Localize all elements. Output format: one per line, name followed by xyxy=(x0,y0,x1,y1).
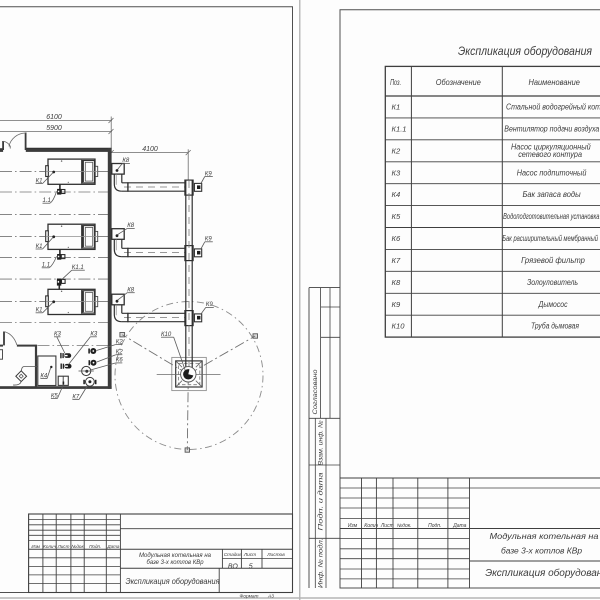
svg-text:А3: А3 xyxy=(267,593,274,599)
svg-text:4100: 4100 xyxy=(142,146,158,153)
svg-text:Труба дымовая: Труба дымовая xyxy=(531,322,580,331)
svg-text:Водоподготовительная установка: Водоподготовительная установка xyxy=(503,212,600,221)
svg-text:Бак расширительный мембранный: Бак расширительный мембранный xyxy=(502,234,598,243)
svg-text:К4: К4 xyxy=(392,190,401,199)
svg-text:К1: К1 xyxy=(392,103,401,112)
svg-text:Изм: Изм xyxy=(348,523,358,529)
svg-text:Взам. инф. №: Взам. инф. № xyxy=(317,420,324,465)
svg-text:Дымосос: Дымосос xyxy=(538,300,568,309)
svg-text:базе 3-х котлов КВр: базе 3-х котлов КВр xyxy=(501,545,582,555)
svg-text:Модульная котельная на: Модульная котельная на xyxy=(490,531,599,541)
svg-text:Золоуловитель: Золоуловитель xyxy=(527,278,578,287)
svg-text:Модульная котельная на: Модульная котельная на xyxy=(139,552,212,559)
svg-text:Поз.: Поз. xyxy=(390,78,401,87)
svg-text:К8: К8 xyxy=(392,278,401,287)
svg-text:Лист: Лист xyxy=(380,523,394,529)
svg-text:Лист: Лист xyxy=(243,552,256,558)
svg-text:Изм: Изм xyxy=(31,544,40,549)
svg-text:К7: К7 xyxy=(392,256,401,265)
svg-text:Колич: Колич xyxy=(364,523,378,529)
svg-text:К10: К10 xyxy=(392,322,406,331)
svg-text:К6: К6 xyxy=(392,234,401,243)
svg-text:Экспликация оборудования: Экспликация оборудования xyxy=(126,577,221,586)
svg-text:Подп.: Подп. xyxy=(428,523,441,529)
svg-text:К3: К3 xyxy=(392,168,401,177)
svg-text:К9: К9 xyxy=(392,300,401,309)
svg-text:Насос подпиточный: Насос подпиточный xyxy=(517,168,587,177)
svg-text:К1.1: К1.1 xyxy=(392,125,407,134)
svg-text:5900: 5900 xyxy=(46,125,62,132)
svg-text:Экспликация оборудования: Экспликация оборудования xyxy=(458,44,593,58)
svg-text:Стадия: Стадия xyxy=(224,552,242,558)
svg-text:Листов: Листов xyxy=(266,552,285,558)
svg-text:Вентилятор подачи воздуха: Вентилятор подачи воздуха xyxy=(504,125,600,134)
svg-text:Согласовано: Согласовано xyxy=(312,369,319,415)
svg-text:Инф. № подл.: Инф. № подл. xyxy=(317,538,324,588)
svg-text:№док.: №док. xyxy=(397,523,412,529)
svg-text:Подп. и дата: Подп. и дата xyxy=(317,472,324,531)
svg-text:№док: №док xyxy=(71,544,84,549)
svg-text:Лист: Лист xyxy=(57,544,70,549)
svg-text:Обозначение: Обозначение xyxy=(436,78,482,87)
svg-text:Подп.: Подп. xyxy=(89,544,101,549)
svg-text:Грязевой фильтр: Грязевой фильтр xyxy=(521,256,585,265)
svg-text:К5: К5 xyxy=(392,212,401,221)
svg-text:Дата: Дата xyxy=(452,523,466,529)
svg-text:6100: 6100 xyxy=(46,114,62,121)
svg-text:Дата: Дата xyxy=(106,544,120,549)
svg-text:Бак запаса воды: Бак запаса воды xyxy=(523,190,581,199)
svg-text:Стальной водогрейный котёл: Стальной водогрейный котёл xyxy=(506,103,600,112)
svg-text:Колич: Колич xyxy=(43,544,56,549)
svg-text:К2: К2 xyxy=(392,146,401,155)
svg-text:сетевого контура: сетевого контура xyxy=(518,150,582,159)
svg-text:Формат: Формат xyxy=(240,593,259,599)
svg-text:базе 3-х котлов КВр: базе 3-х котлов КВр xyxy=(147,559,205,566)
svg-text:ВО: ВО xyxy=(228,563,239,570)
svg-text:Наименование: Наименование xyxy=(529,78,581,87)
svg-text:Экспликация оборудования: Экспликация оборудования xyxy=(485,567,600,579)
svg-text:5: 5 xyxy=(249,563,253,570)
